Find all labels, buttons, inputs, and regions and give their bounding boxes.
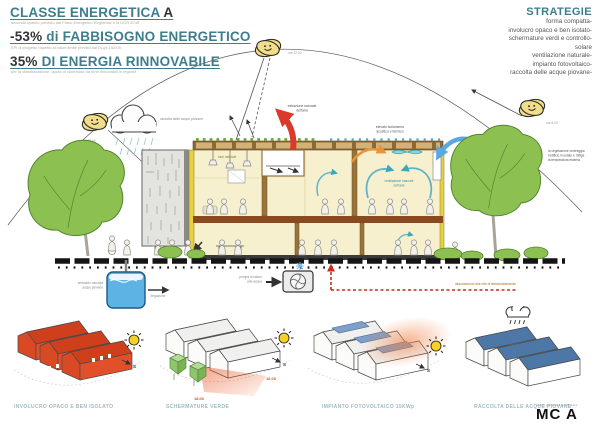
diagram-acque [452,306,594,402]
title-sub-3: per la climatizzazione, quota di contrib… [11,70,251,74]
diagram-involucro: S [6,308,152,400]
title-line-3: 35% DI ENERGIA RINNOVABILE [10,55,251,69]
strategie-item-6: raccolta delle acque piovane- [508,69,592,78]
label-tree-3: la temperatura esterna [548,158,580,162]
label-pump-1: pompa di calore [239,275,262,279]
gabion-wall [142,150,189,246]
diagram-schermature-label: SCHERMATURE VERDE [166,404,229,410]
label-district: allacciamento alla rete di teleriscaldam… [455,282,516,286]
strategie-item-1: involucro opaco e ben isolato- [508,27,592,36]
label-rain-collection: raccolta delle acque piovane [160,117,203,121]
label-tank-1: serbatoio raccolta [78,281,103,285]
label-tree-2: l'edificio in estate e mitiga [548,154,584,158]
label-irrigation: irrigazione [151,294,166,298]
title-sub-2: EPi di progetto rispetto ai valori limit… [11,46,251,50]
sun-evening-icon [80,110,110,133]
title-classe: CLASSE ENERGETICA [10,5,160,20]
label-extraction-1: estrazione naturale [288,104,317,108]
sun-time-morning: ore 8.00 [546,121,558,125]
south-label: S [283,362,286,367]
south-label: S [427,368,430,373]
title-line-2: -53% di FABBISOGNO ENERGETICO [10,30,251,44]
stat-fabbisogno-value: -53% [10,29,42,44]
title-line-1: CLASSE ENERGETICA A [10,6,251,20]
header: CLASSE ENERGETICA A secondo quanto previ… [10,6,251,79]
strategie-item-2: schermature verdi e controllo- [508,35,592,44]
strategie-item-3: solare [508,44,592,53]
diagram-involucro-label: INVOLUCRO OPACO E BEN ISOLATO [14,404,113,410]
ground-line [55,261,565,268]
rain-icon [506,306,530,324]
label-tree-1: la vegetazione ombreggia [548,149,585,153]
label-roof-2: acustico e termico [376,130,403,134]
district-heating-line [331,266,518,290]
mca-logo-text: MC A [536,407,592,422]
shadow-time-b: 16.00 [266,376,277,381]
title-class-letter: A [163,5,173,20]
strategie-item-0: forma compatta- [508,18,592,27]
label-tank-2: acque piovane [82,286,103,290]
rain-cloud-icon [111,105,156,155]
label-pump-2: aria-acqua [247,280,262,284]
shadow-time-a: 18.00 [194,396,205,401]
sun-time-noon: ore 12.00 [288,51,302,55]
south-label: S [133,364,136,369]
sun-icon [125,331,144,350]
stat-fabbisogno-label: di FABBISOGNO ENERGETICO [46,29,250,44]
strategie-title: STRATEGIE [508,6,592,18]
mca-logo: mario cucinella architects MC A [536,403,592,422]
label-vent-1: ventilazione naturale [384,179,413,183]
label-roof-1: elevato isolamento [376,125,404,129]
label-extraction-2: dell'aria [296,109,308,113]
stat-rinnovabile-value: 35% [10,54,38,69]
heat-pump [266,262,313,292]
diagram-fotovoltaico: S [302,308,452,402]
label-vent-2: dell'aria [394,184,405,188]
title-sub-1: secondo quanto previsto dal Piano Energe… [11,21,251,25]
sun-icon [275,329,294,348]
stat-rinnovabile-label: DI ENERGIA RINNOVABILE [42,54,220,69]
diagram-schermature: S 18.00 16.00 [154,308,302,402]
strategie-item-5: impianto fotovoltaico- [508,61,592,70]
strategie-item-4: ventilazione naturale- [508,52,592,61]
sun-noon-icon [253,36,283,59]
diagram-fotovoltaico-label: IMPIANTO FOTOVOLTAICO 15KWp [322,404,414,410]
energy-poster: ore 18.00 ore 12.00 ore 8.00 raccolta de… [0,0,600,424]
strategie-panel: STRATEGIE forma compatta- involucro opac… [508,6,592,78]
label-daylight: luce naturale [218,155,236,159]
